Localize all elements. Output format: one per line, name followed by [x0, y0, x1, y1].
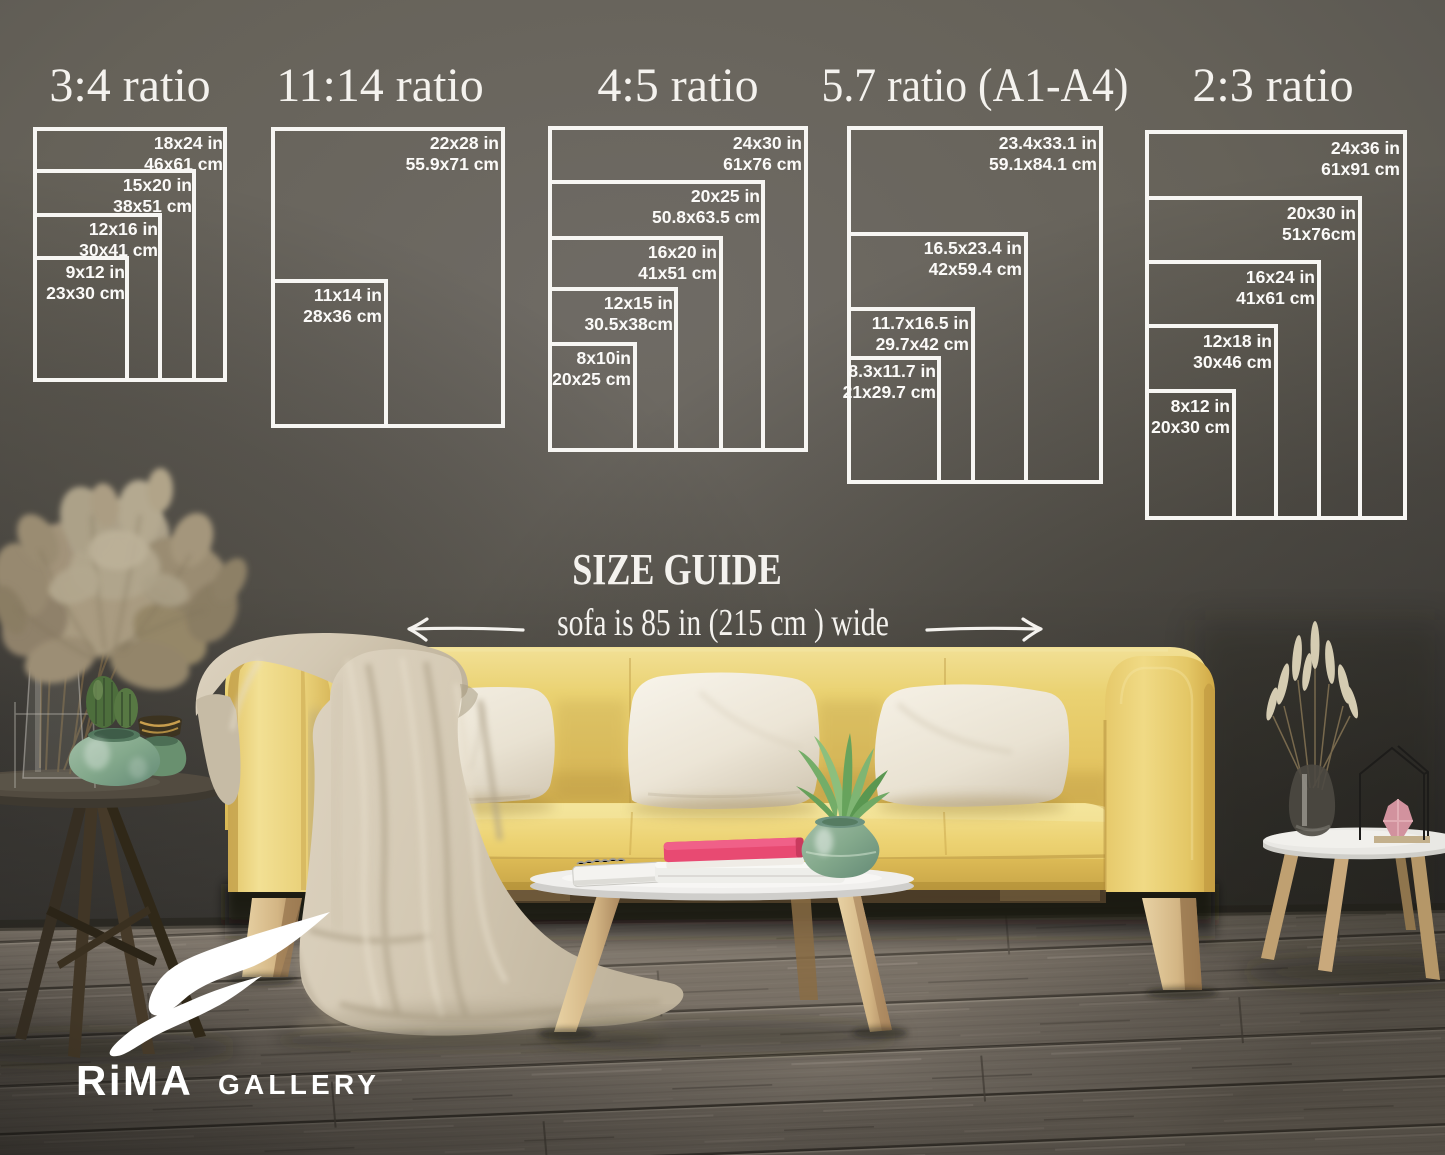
svg-text:RiMA: RiMA — [76, 1057, 193, 1104]
svg-text:GALLERY: GALLERY — [218, 1069, 380, 1100]
